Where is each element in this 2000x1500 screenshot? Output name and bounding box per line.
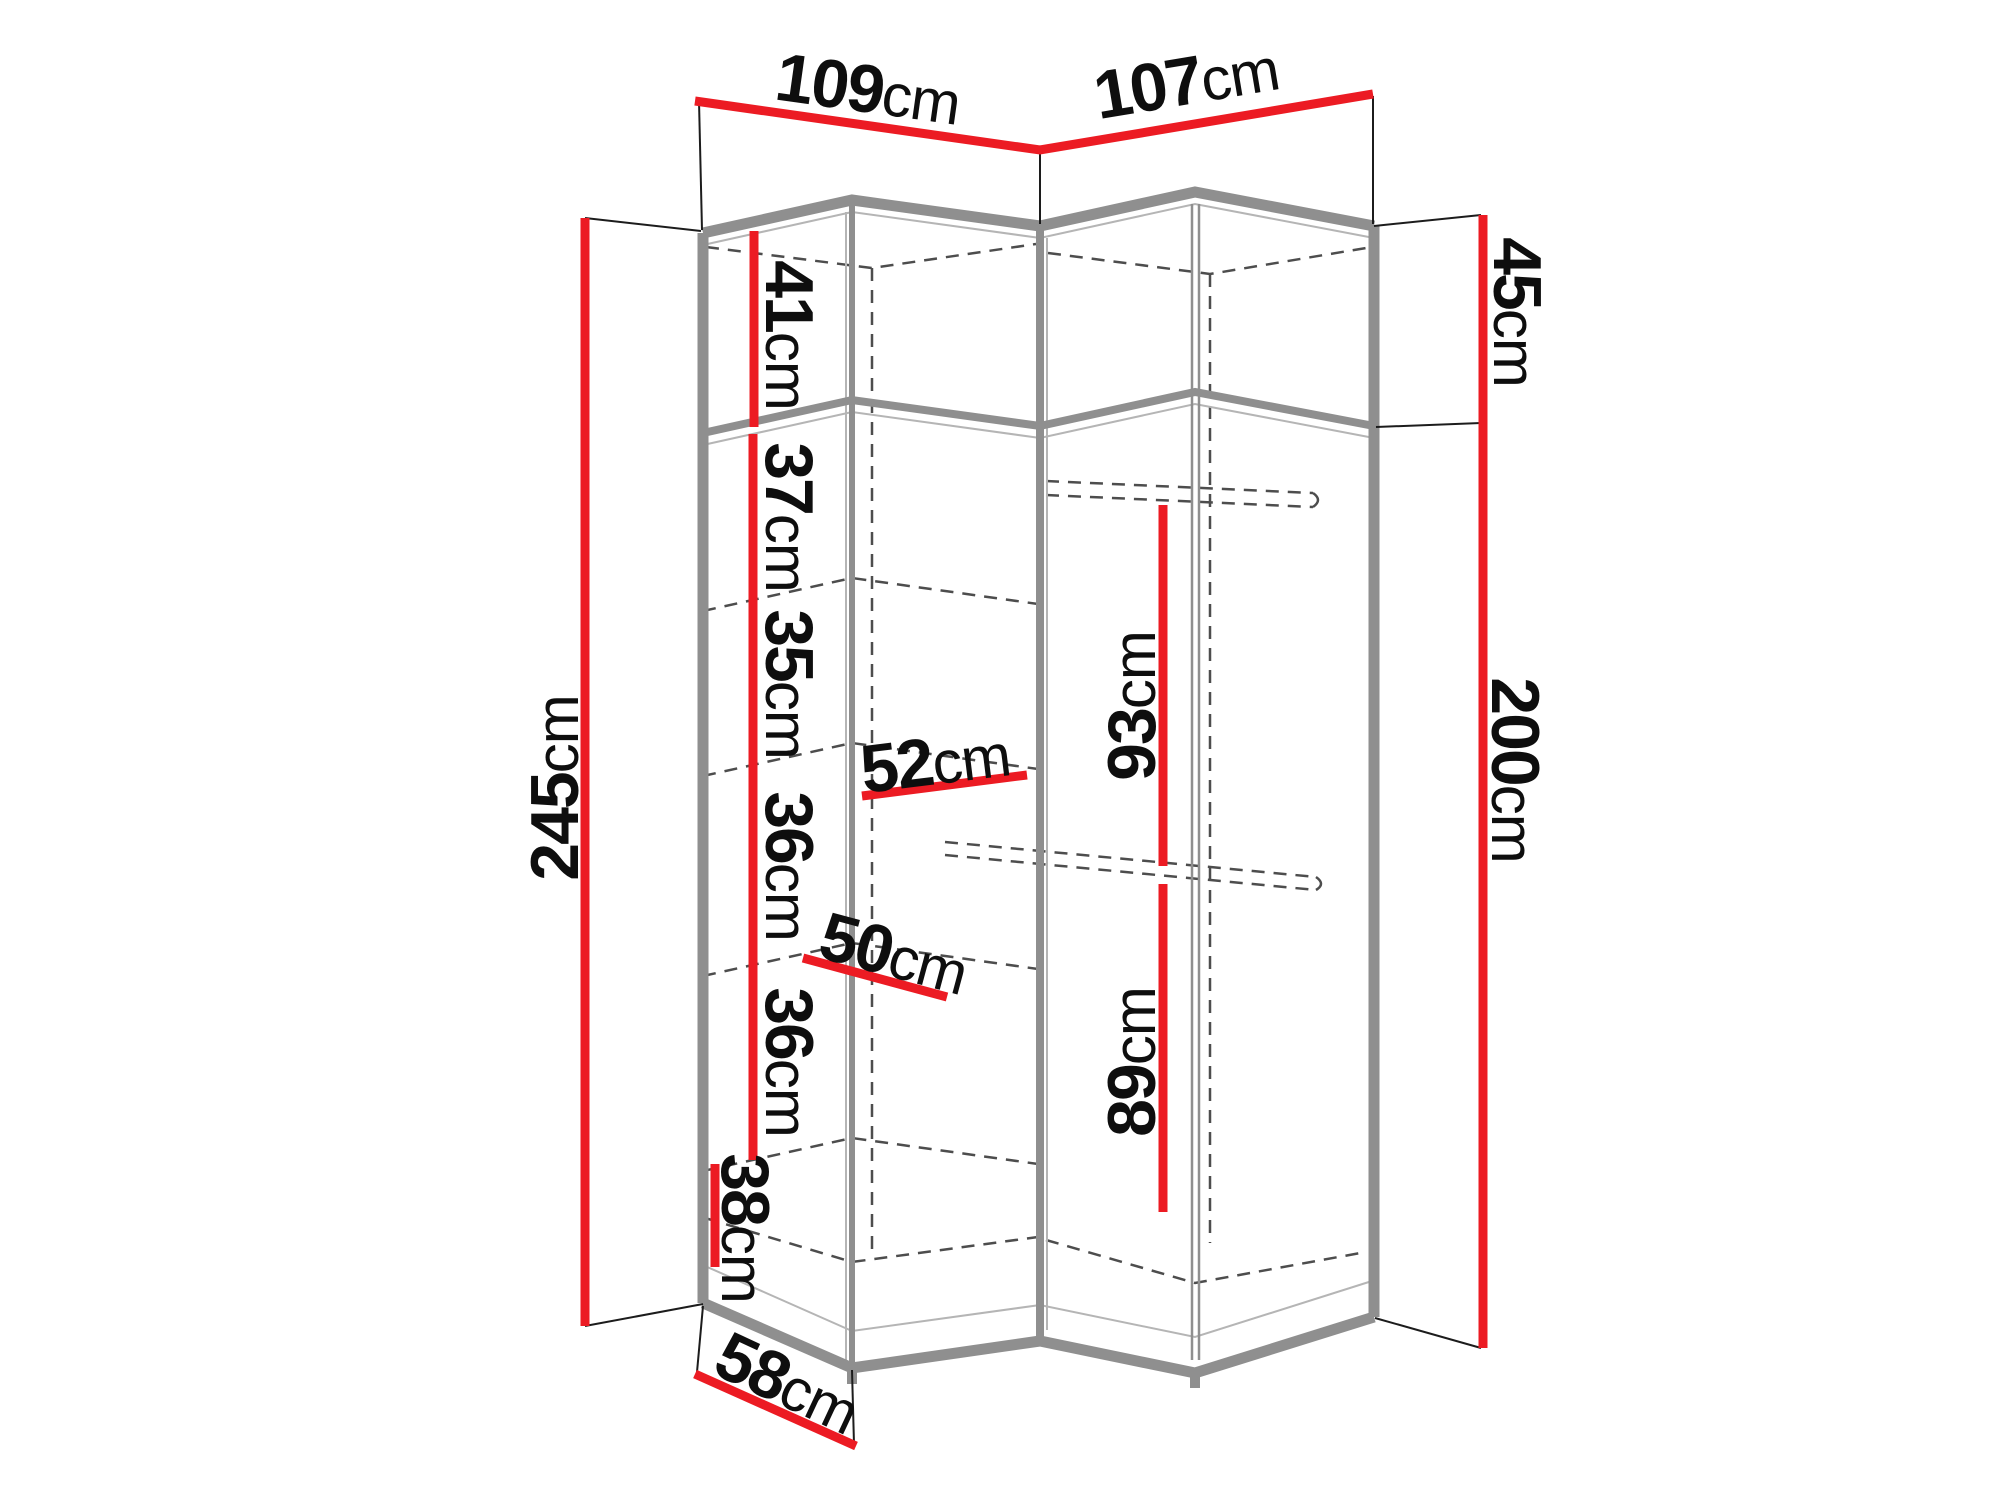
dim-label-shelf-36b: 36cm bbox=[751, 987, 827, 1137]
dim-label-shelf-35: 35cm bbox=[751, 609, 827, 759]
rail-cap-top bbox=[1313, 493, 1318, 507]
dim-label-89: 89cm bbox=[1094, 987, 1170, 1137]
rail-cap-bottom bbox=[1316, 877, 1321, 890]
hanging-rail-bottom bbox=[945, 842, 1316, 890]
tick-109-left bbox=[699, 101, 702, 230]
dim-label-50: 50cm bbox=[812, 898, 976, 1010]
wardrobe-diagram-canvas: 109cm 107cm 245cm 45cm 200cm 41cm 37cm 3… bbox=[0, 0, 2000, 1500]
dim-label-shelf-36a: 36cm bbox=[751, 791, 827, 941]
dim-label-93: 93cm bbox=[1094, 631, 1170, 781]
dim-label-shelf-37: 37cm bbox=[751, 442, 827, 592]
tick-58-left bbox=[697, 1306, 703, 1372]
dim-label-shelf-38: 38cm bbox=[707, 1153, 783, 1303]
rail-end-caps bbox=[1313, 493, 1321, 890]
dim-label-109: 109cm bbox=[771, 39, 965, 140]
tick-200-bottom bbox=[1375, 1318, 1481, 1348]
dim-label-45: 45cm bbox=[1479, 237, 1555, 387]
top-back-edges-right bbox=[1048, 248, 1366, 274]
dim-label-52: 52cm bbox=[856, 714, 1014, 808]
tick-45-top bbox=[1374, 215, 1481, 226]
tick-45-200 bbox=[1376, 423, 1481, 427]
floor-edge-right bbox=[1046, 1240, 1366, 1283]
tick-245-top bbox=[585, 218, 701, 231]
dim-label-200: 200cm bbox=[1477, 677, 1553, 862]
tick-245-bottom bbox=[585, 1304, 703, 1326]
furniture-dimension-diagram: 109cm 107cm 245cm 45cm 200cm 41cm 37cm 3… bbox=[0, 0, 2000, 1500]
dim-label-shelf-41: 41cm bbox=[751, 260, 827, 410]
dim-label-245: 245cm bbox=[517, 695, 593, 880]
hanging-rail-top bbox=[1046, 481, 1313, 507]
